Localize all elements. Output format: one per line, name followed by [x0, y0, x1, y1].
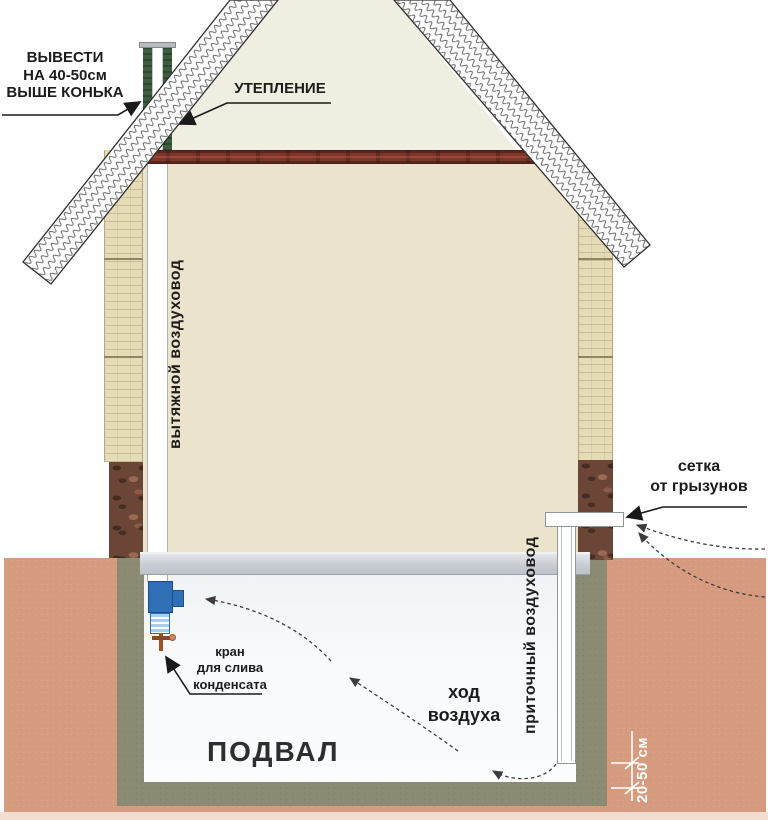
label-basement: ПОДВАЛ — [207, 736, 340, 768]
leader-rodent-mesh — [627, 507, 747, 517]
house-ventilation-diagram: ВЫВЕСТИ НА 40-50см ВЫШЕ КОНЬКА УТЕПЛЕНИЕ… — [0, 0, 768, 820]
ground-bottom-strip — [0, 812, 768, 820]
supply-duct-horizontal — [545, 512, 624, 527]
left-wall-stone-base — [109, 462, 143, 558]
label-rodent-mesh: сетка от грызунов — [638, 457, 760, 497]
foundation-right-wall — [576, 558, 607, 806]
fan-unit-outlet — [172, 590, 184, 607]
right-wall-stone-base — [578, 460, 613, 560]
airflow-inlet-upper — [637, 525, 765, 549]
label-insulation: УТЕПЛЕНИЕ — [224, 80, 336, 97]
label-air-flow: ход воздуха — [413, 681, 515, 726]
fan-unit-body — [148, 581, 173, 613]
label-supply-duct: приточный воздуховод — [522, 531, 542, 739]
mortar-line — [104, 356, 143, 358]
roof-right-band — [394, 0, 650, 267]
roof-left-band — [23, 0, 278, 284]
label-condensate-valve: кран для слива конденсата — [184, 644, 276, 693]
label-duct-floor-clearance: 20-50 см — [634, 728, 656, 812]
supply-duct-inner-channel — [561, 526, 572, 761]
mortar-line — [578, 356, 613, 358]
roof — [0, 0, 768, 300]
foundation-left-wall — [117, 556, 144, 806]
foundation-floor-slab — [117, 780, 607, 806]
fan-flex-connector — [150, 613, 170, 634]
label-exhaust-duct: вытяжной воздуховод — [167, 254, 187, 454]
supply-duct-vertical — [557, 514, 576, 764]
condensate-valve-knob — [169, 634, 176, 641]
label-vent-above-ridge: ВЫВЕСТИ НА 40-50см ВЫШЕ КОНЬКА — [0, 49, 130, 102]
